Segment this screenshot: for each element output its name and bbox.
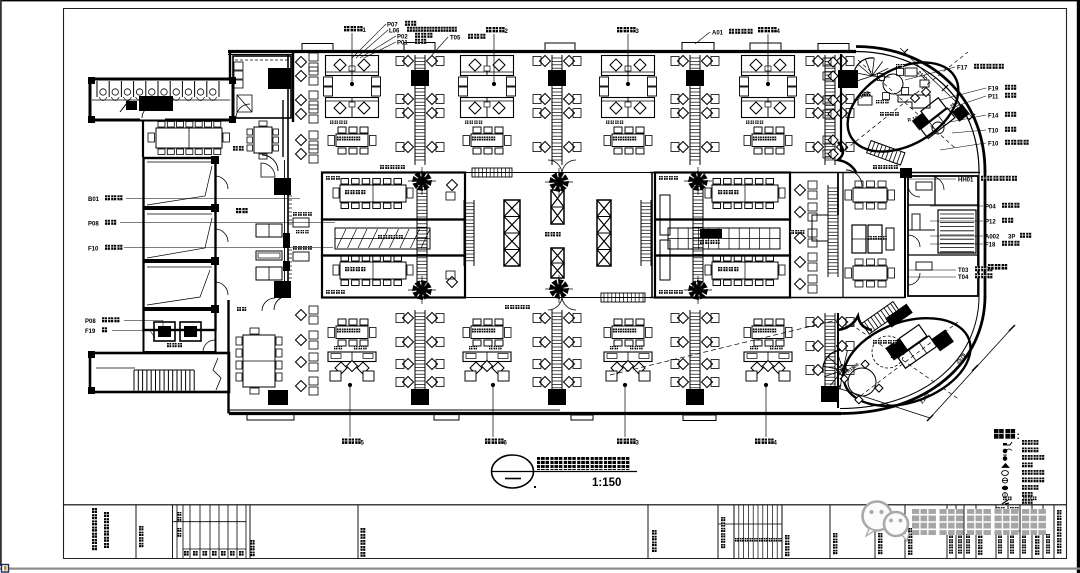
- svg-text:F10: F10: [88, 247, 99, 253]
- svg-text:F17: F17: [957, 66, 968, 72]
- svg-text:A01: A01: [712, 31, 724, 37]
- svg-text:T03: T03: [958, 268, 969, 274]
- svg-text:P08: P08: [88, 222, 99, 228]
- svg-text:F14: F14: [988, 114, 999, 120]
- svg-text:P12: P12: [985, 220, 996, 226]
- svg-text:HH01: HH01: [958, 178, 974, 184]
- svg-text::: :: [1017, 431, 1020, 442]
- svg-text:P01: P01: [397, 41, 408, 47]
- svg-text:3P: 3P: [1008, 235, 1015, 241]
- svg-text:1F: 1F: [890, 354, 896, 359]
- svg-text:T04: T04: [958, 275, 969, 281]
- svg-text:T05: T05: [450, 36, 461, 42]
- svg-text:P08: P08: [85, 319, 96, 325]
- svg-text:P04: P04: [985, 205, 996, 211]
- svg-text:F19: F19: [85, 329, 96, 335]
- svg-text:A002: A002: [985, 235, 1000, 241]
- svg-text:1:150: 1:150: [592, 477, 621, 489]
- svg-text:F18: F18: [985, 243, 996, 249]
- svg-text:B01: B01: [88, 197, 100, 203]
- svg-text:P11: P11: [988, 95, 999, 101]
- svg-text:T10: T10: [988, 129, 999, 135]
- svg-text:F10: F10: [988, 142, 999, 148]
- svg-text:F19: F19: [988, 87, 999, 93]
